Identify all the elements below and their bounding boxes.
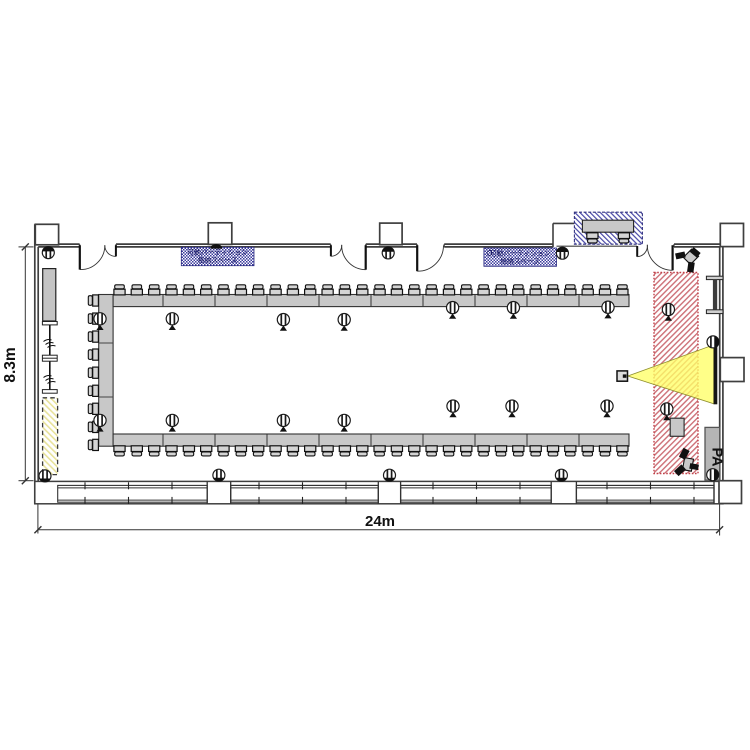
svg-text:24m: 24m xyxy=(365,513,395,530)
svg-text:PA: PA xyxy=(708,447,724,467)
svg-text:可動パーティション: 可動パーティション xyxy=(187,248,248,257)
svg-text:可動パーティション: 可動パーティション xyxy=(490,248,551,257)
svg-text:格納スペース: 格納スペース xyxy=(198,256,238,265)
svg-text:8.3m: 8.3m xyxy=(2,347,19,382)
svg-text:格納スペース: 格納スペース xyxy=(500,256,540,265)
